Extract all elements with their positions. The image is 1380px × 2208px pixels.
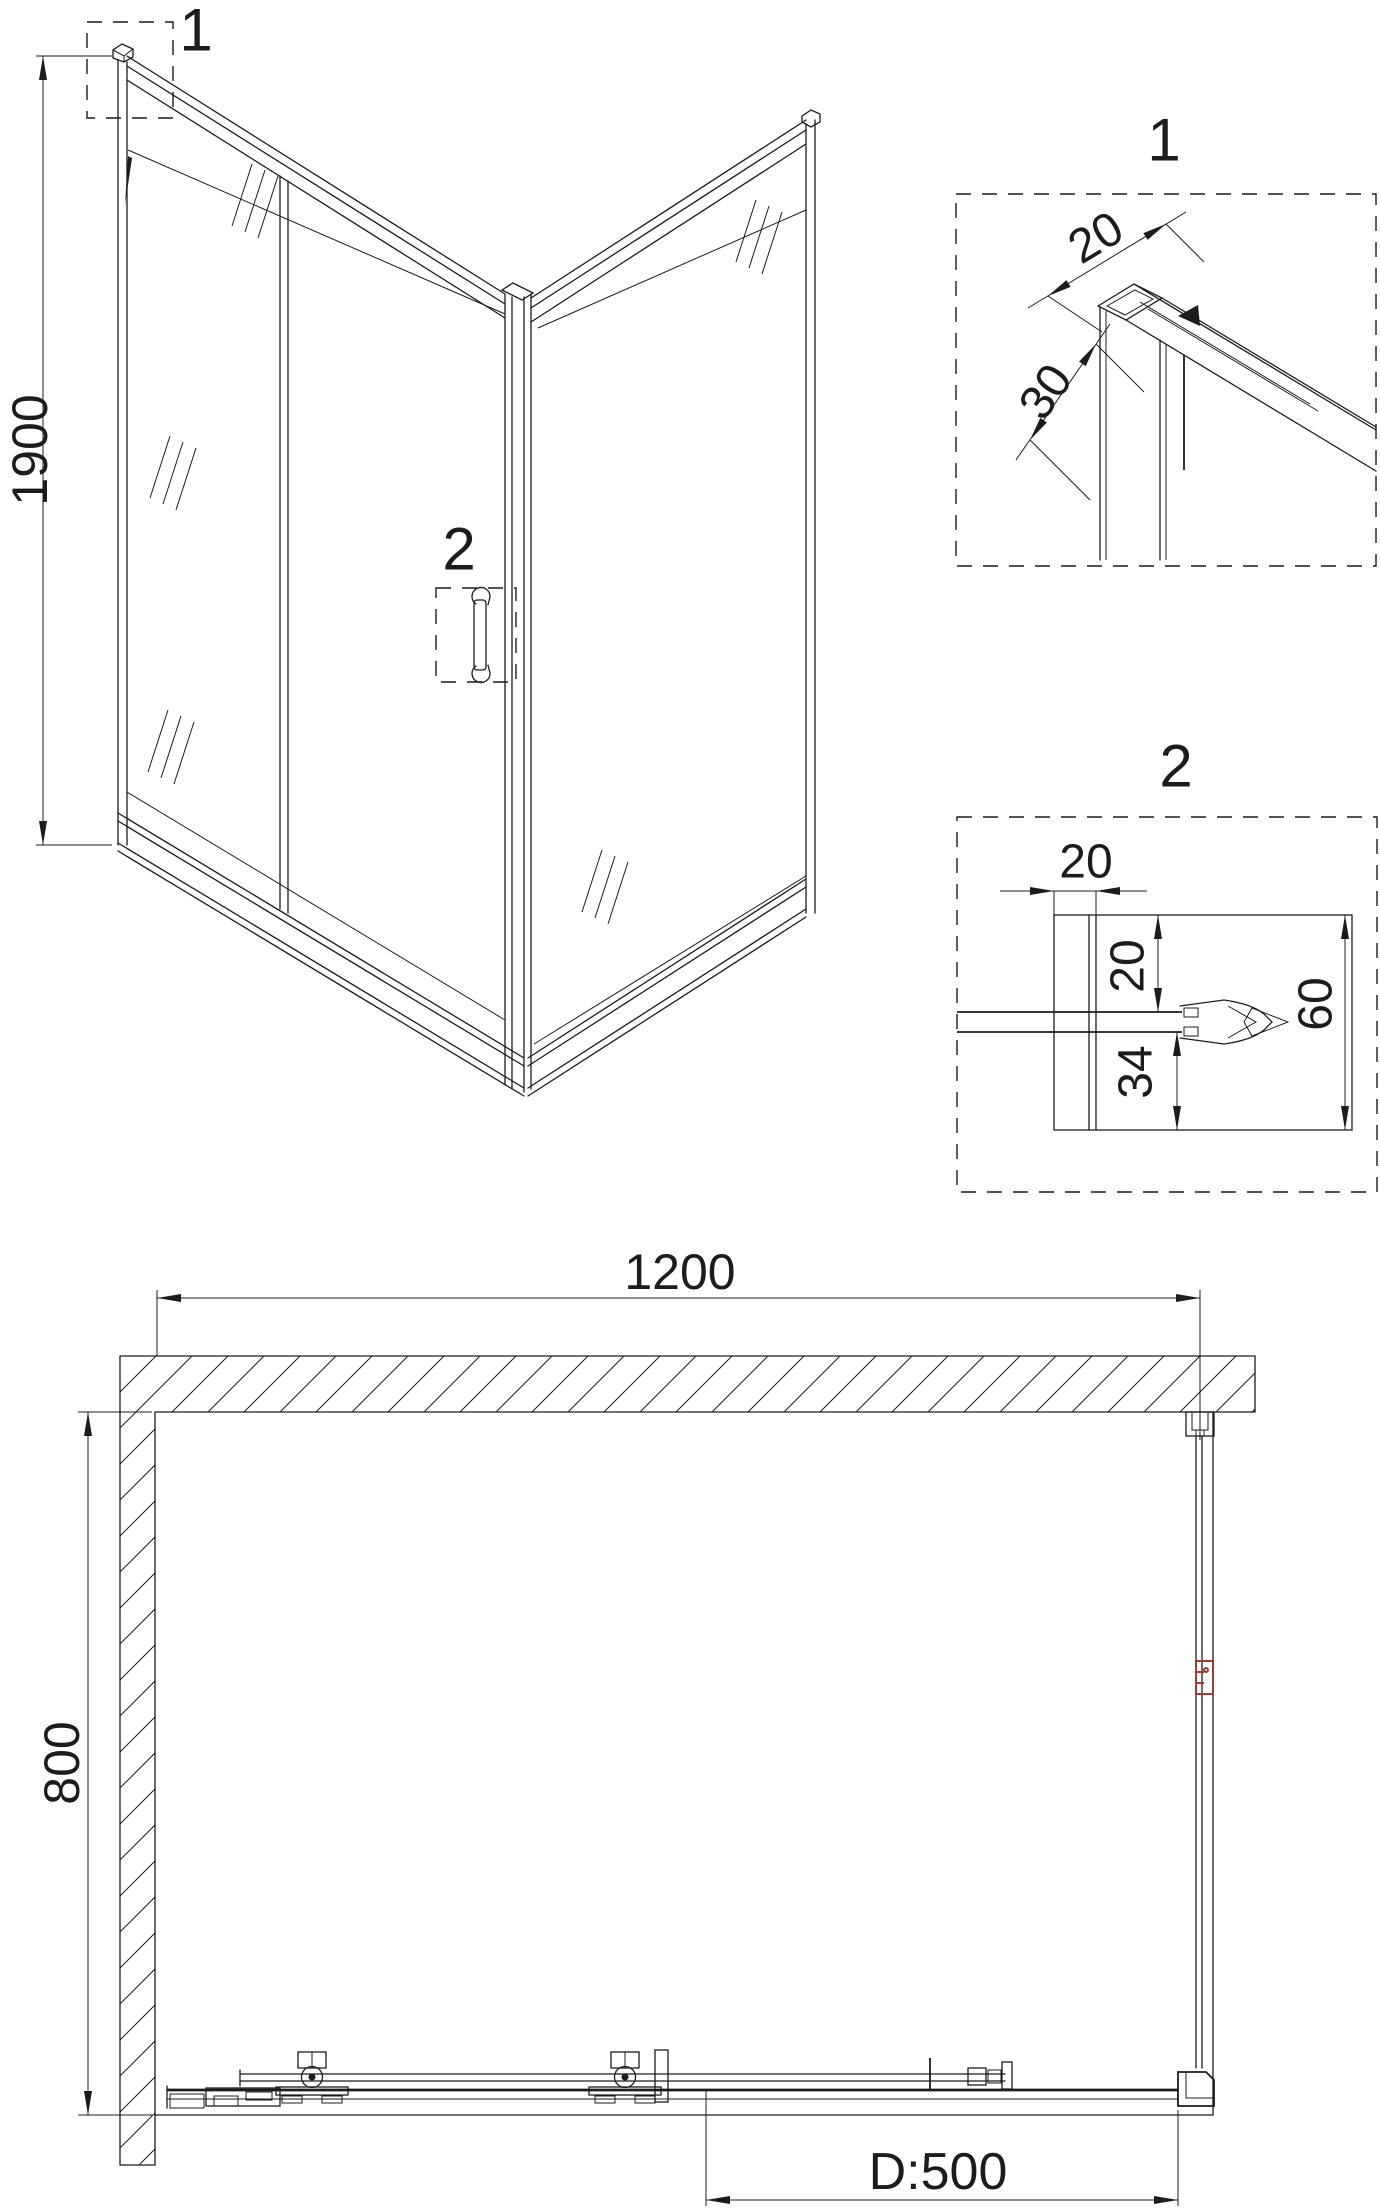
corner-post	[502, 283, 533, 1092]
detail-2-dim-20-vertical: 20	[1102, 915, 1163, 1012]
technical-drawing-canvas: 1900 1	[0, 0, 1380, 2208]
door-opening-dimension-label: D:500	[869, 2143, 1008, 2201]
wall-outline	[120, 1356, 1255, 2165]
detail-2-dim-20-top-label: 20	[1059, 836, 1112, 889]
detail-1-dim-30-label: 30	[1009, 355, 1083, 429]
depth-dimension-label: 800	[34, 1721, 90, 1804]
detail-view-1: 1 20	[956, 107, 1376, 567]
callout-1: 1	[87, 0, 213, 118]
callout-2: 2	[436, 516, 516, 683]
side-top-rail	[531, 120, 806, 328]
enclosure-boundary	[155, 1412, 1213, 2115]
detail-1-dim-30: 30	[1009, 324, 1144, 500]
detail-1-profile	[1098, 284, 1376, 560]
door-handle	[472, 588, 490, 683]
front-top-rail	[125, 56, 505, 318]
isometric-view: 1900 1	[2, 0, 820, 1096]
width-dimension-label: 1200	[624, 1244, 735, 1300]
door-divider	[280, 176, 288, 913]
detail-view-2: 2 20	[957, 733, 1377, 1193]
side-bottom-rail	[528, 876, 806, 1096]
left-wall-hatch	[120, 1412, 155, 2165]
detail-1-label: 1	[1147, 107, 1180, 174]
right-post	[802, 110, 820, 913]
rail-end-bumper	[968, 2062, 1012, 2089]
roller-carriage-right	[589, 2052, 661, 2103]
roller-carriage-left	[276, 2052, 348, 2103]
height-dimension-1900: 1900	[2, 56, 112, 845]
plan-view: 1200 800	[34, 1244, 1255, 2206]
door-track	[167, 2050, 1178, 2108]
height-dimension-label: 1900	[2, 394, 58, 505]
detail-1-dim-20-label: 20	[1059, 202, 1132, 275]
detail-2-dim-34-label: 34	[1110, 1045, 1163, 1098]
top-wall-hatch	[120, 1356, 1255, 1412]
front-bottom-rail	[118, 792, 524, 1096]
corner-shoe	[1178, 2072, 1214, 2106]
detail-2-dim-20-top: 20	[1000, 836, 1147, 916]
detail-2-dim-60: 60	[1290, 915, 1350, 1130]
door-opening-dimension: D:500	[706, 2090, 1178, 2206]
side-panel	[1178, 1412, 1214, 2106]
detail-2-dim-20-vertical-label: 20	[1102, 939, 1155, 992]
callout-2-label: 2	[442, 516, 475, 583]
detail-2-label: 2	[1159, 733, 1192, 800]
walls	[120, 1356, 1255, 2165]
detail-2-dim-60-label: 60	[1290, 977, 1343, 1030]
detail-1-dim-20: 20	[1028, 202, 1204, 332]
callout-1-label: 1	[179, 0, 212, 64]
wall-bracket-red	[1196, 1661, 1213, 1694]
detail-2-dim-34: 34	[1110, 1032, 1182, 1130]
